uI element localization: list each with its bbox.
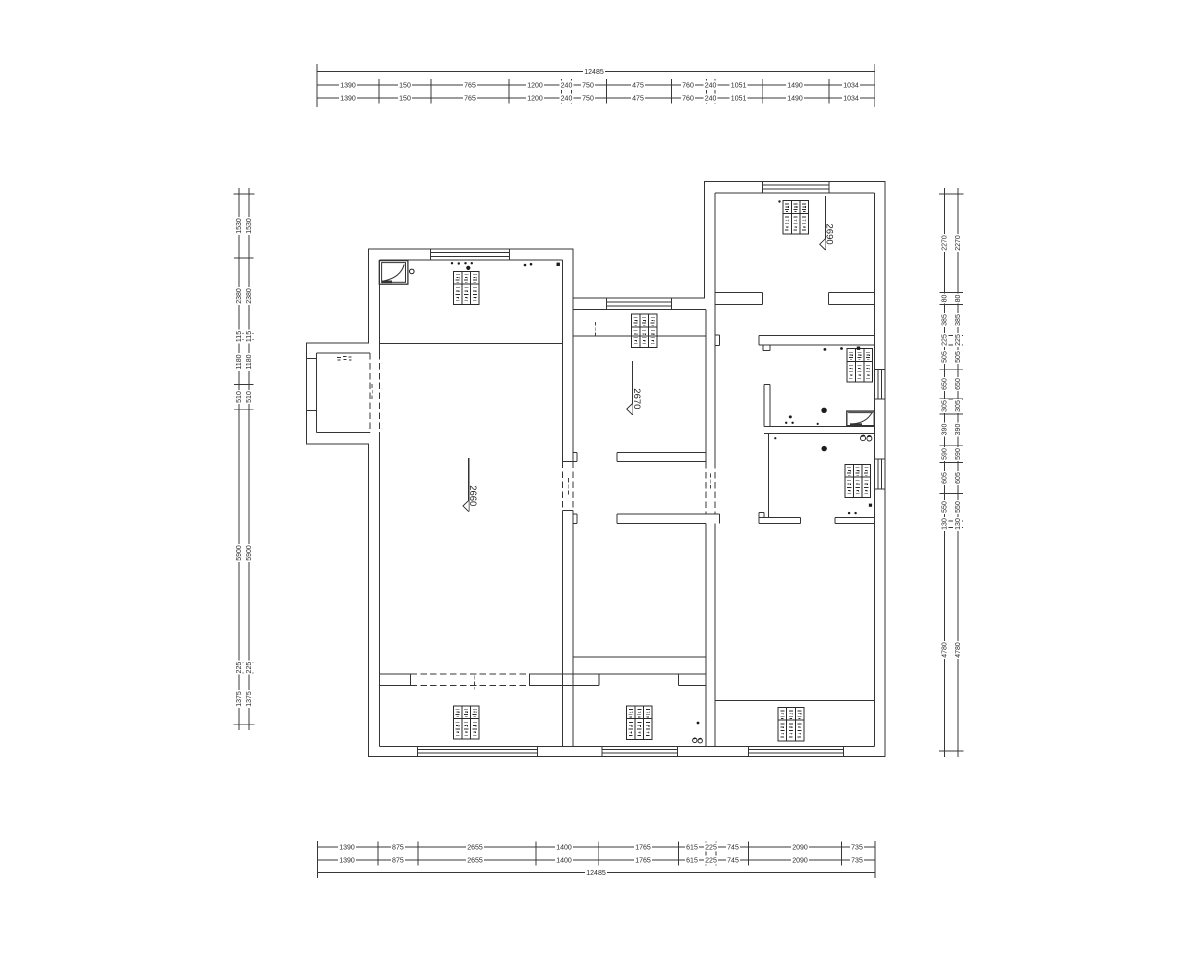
svg-text:1375: 1375 (236, 691, 243, 707)
svg-text:505: 505 (955, 351, 962, 363)
svg-text:12485: 12485 (584, 69, 604, 76)
svg-text:130: 130 (942, 518, 949, 530)
svg-text:875: 875 (392, 857, 404, 864)
svg-text:590: 590 (955, 448, 962, 460)
svg-text:240: 240 (561, 96, 573, 103)
svg-text:115: 115 (246, 331, 253, 342)
svg-text:150: 150 (399, 82, 411, 89)
svg-text:80: 80 (942, 295, 949, 303)
svg-text:2270: 2270 (955, 235, 962, 251)
svg-text:1400: 1400 (556, 844, 572, 851)
svg-text:605: 605 (955, 472, 962, 484)
svg-text:2270: 2270 (942, 235, 949, 251)
svg-text:1765: 1765 (635, 857, 651, 864)
svg-text:760: 760 (682, 96, 694, 103)
svg-text:735: 735 (851, 844, 863, 851)
svg-text:150: 150 (399, 96, 411, 103)
svg-text:2660: 2660 (467, 485, 478, 506)
svg-text:765: 765 (464, 96, 476, 103)
svg-text:1400: 1400 (556, 857, 572, 864)
svg-text:225: 225 (705, 857, 717, 864)
svg-text:510: 510 (246, 391, 253, 403)
svg-text:240: 240 (705, 96, 717, 103)
svg-text:1051: 1051 (731, 82, 747, 89)
svg-text:1530: 1530 (236, 218, 243, 234)
svg-text:2655: 2655 (467, 857, 483, 864)
svg-text:2690: 2690 (824, 224, 835, 245)
svg-text:1200: 1200 (527, 82, 543, 89)
svg-text:240: 240 (705, 82, 717, 89)
svg-text:12485: 12485 (586, 870, 606, 877)
svg-text:4780: 4780 (942, 642, 949, 658)
svg-text:2380: 2380 (246, 288, 253, 304)
svg-text:225: 225 (955, 334, 962, 346)
svg-text:875: 875 (392, 844, 404, 851)
svg-text:115: 115 (236, 331, 243, 342)
svg-text:475: 475 (632, 96, 644, 103)
svg-text:605: 605 (942, 472, 949, 484)
svg-text:1051: 1051 (731, 96, 747, 103)
svg-text:2380: 2380 (236, 288, 243, 304)
svg-text:2670: 2670 (631, 388, 642, 409)
svg-text:650: 650 (942, 378, 949, 390)
svg-text:1390: 1390 (340, 96, 356, 103)
svg-text:615: 615 (686, 844, 698, 851)
svg-text:305: 305 (942, 400, 949, 412)
svg-text:225: 225 (705, 844, 717, 851)
svg-text:305: 305 (955, 400, 962, 412)
svg-text:760: 760 (682, 82, 694, 89)
svg-text:2090: 2090 (792, 844, 808, 851)
svg-text:550: 550 (942, 501, 949, 513)
svg-text:750: 750 (582, 96, 594, 103)
svg-text:1490: 1490 (787, 82, 803, 89)
svg-text:130: 130 (955, 518, 962, 530)
svg-text:590: 590 (942, 448, 949, 460)
svg-text:510: 510 (236, 391, 243, 403)
svg-text:765: 765 (464, 82, 476, 89)
svg-text:225: 225 (236, 662, 243, 674)
svg-text:735: 735 (851, 857, 863, 864)
svg-text:225: 225 (942, 334, 949, 346)
svg-text:615: 615 (686, 857, 698, 864)
svg-text:1034: 1034 (843, 82, 859, 89)
svg-text:240: 240 (561, 82, 573, 89)
svg-text:1490: 1490 (787, 96, 803, 103)
svg-text:2090: 2090 (792, 857, 808, 864)
svg-text:1200: 1200 (527, 96, 543, 103)
svg-text:1390: 1390 (340, 82, 356, 89)
svg-text:1375: 1375 (246, 691, 253, 707)
svg-text:745: 745 (727, 857, 739, 864)
svg-text:225: 225 (246, 662, 253, 674)
svg-text:650: 650 (955, 378, 962, 390)
svg-text:1180: 1180 (236, 354, 243, 369)
svg-text:1390: 1390 (339, 844, 355, 851)
svg-text:750: 750 (582, 82, 594, 89)
svg-text:1530: 1530 (246, 218, 253, 234)
svg-text:1390: 1390 (339, 857, 355, 864)
svg-text:385: 385 (942, 314, 949, 326)
svg-text:4780: 4780 (955, 642, 962, 658)
svg-text:1765: 1765 (635, 844, 651, 851)
svg-text:1180: 1180 (246, 354, 253, 369)
svg-text:390: 390 (942, 424, 949, 436)
svg-text:1034: 1034 (843, 96, 859, 103)
svg-text:475: 475 (632, 82, 644, 89)
svg-text:550: 550 (955, 501, 962, 513)
svg-text:80: 80 (955, 295, 962, 303)
svg-text:5900: 5900 (246, 545, 253, 561)
svg-text:5900: 5900 (236, 545, 243, 561)
svg-text:745: 745 (727, 844, 739, 851)
svg-text:385: 385 (955, 314, 962, 326)
svg-text:390: 390 (955, 424, 962, 436)
svg-text:505: 505 (942, 351, 949, 363)
svg-text:2655: 2655 (467, 844, 483, 851)
